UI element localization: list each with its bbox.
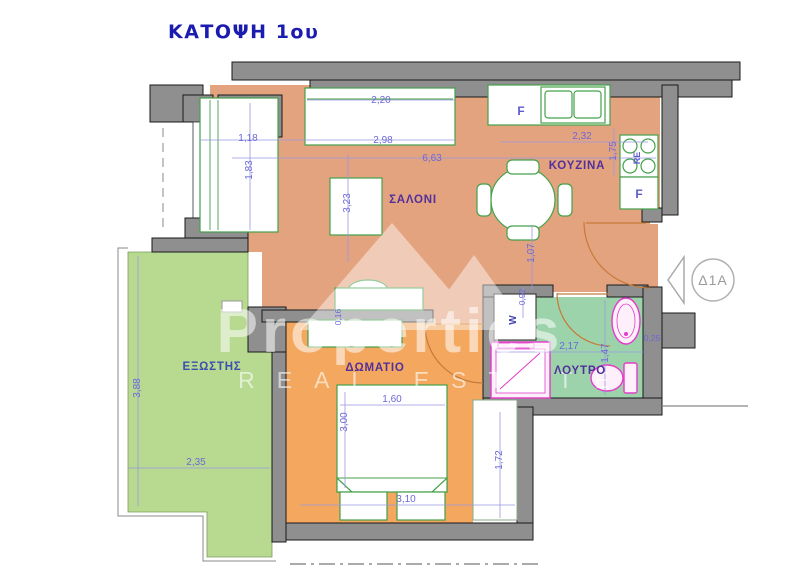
dim-balcony-w: 2,35 [186,457,206,468]
unit-badge-label: Δ1Α [698,272,727,288]
kitchen-label: ΚΟΥΖΙΝΑ [549,160,606,172]
floor-plan-canvas: Properties REAL ESTATE ΚΑΤΟΨΗ 1ου ΣΑΛΟΝΙ… [0,0,800,579]
unit-badge: Δ1Α [668,257,734,303]
kitchen-right-column [662,85,678,215]
dim-bed-w: 1,60 [382,394,402,405]
dim-bath-w: 2,17 [559,341,579,352]
dining-chair-right [558,184,572,216]
kitchen-sink-basin-right [574,91,601,118]
kitchen-cabinet-label: F [635,187,642,201]
kitchen-sink-basin-left [545,91,572,118]
dim-living-depth: 3,23 [342,193,353,213]
living-room-label: ΣΑΛΟΝΙ [389,194,437,206]
dining-chair-left [477,184,491,216]
bedroom-bottom-wall [286,523,533,540]
entry-arrow-icon [668,257,684,303]
dining-table [491,168,555,232]
dim-left-sofa-w: 1,18 [238,133,258,144]
dim-kitchen-d: 1,75 [608,141,619,161]
dim-living-window: 2,98 [373,135,393,146]
dining-chair-bottom [507,226,539,240]
bedroom-right-wall [517,407,533,540]
stove-label: RE [632,152,642,165]
dim-left-sofa-d: 1,83 [244,160,255,180]
entry-wall-step [642,208,662,222]
bed-bench-left [340,492,387,520]
dim-bed-l: 3,00 [339,412,350,432]
dim-kitchen-w: 2,32 [572,131,592,142]
left-sofa [200,98,278,232]
top-insulation-band [232,62,740,80]
stove-burner-4 [641,159,655,173]
plan-title: ΚΑΤΟΨΗ 1ου [168,21,319,43]
dim-bath-d: 1,47 [600,343,611,363]
fridge-label: F [517,104,524,118]
dim-closet-d: 1,72 [494,450,505,470]
dim-bath-fixture: 0,25 [644,333,661,343]
dim-hall-depth: 1,07 [526,243,537,263]
dim-balcony-d: 3,88 [132,378,143,398]
dining-chair-top [507,160,539,174]
stove-burner-2 [641,139,655,153]
dim-bedroom-w: 3,10 [396,494,416,505]
dim-top-sofa: 2,20 [371,95,391,106]
dim-living-total: 6,63 [422,153,442,164]
balcony-label: ΕΞΩΣΤΗΣ [182,361,241,373]
bath-top-wall-right [607,285,648,297]
dim-bath-offset: 0,92 [517,288,527,305]
coffee-table [330,178,382,235]
bedroom-label: ΔΩΜΑΤΙΟ [345,362,404,374]
bath-sink [612,298,640,344]
dim-wall-thickness: 0,16 [333,308,343,325]
left-bottom-insulation [152,238,248,252]
bath-corner-column [662,313,695,348]
watermark-brand: Properties [217,297,564,366]
stove-burner-1 [623,139,637,153]
bath-sink-drain [624,332,628,336]
washer-label: W [508,315,519,325]
bathroom-label: ΛΟΥΤΡΟ [554,365,606,377]
